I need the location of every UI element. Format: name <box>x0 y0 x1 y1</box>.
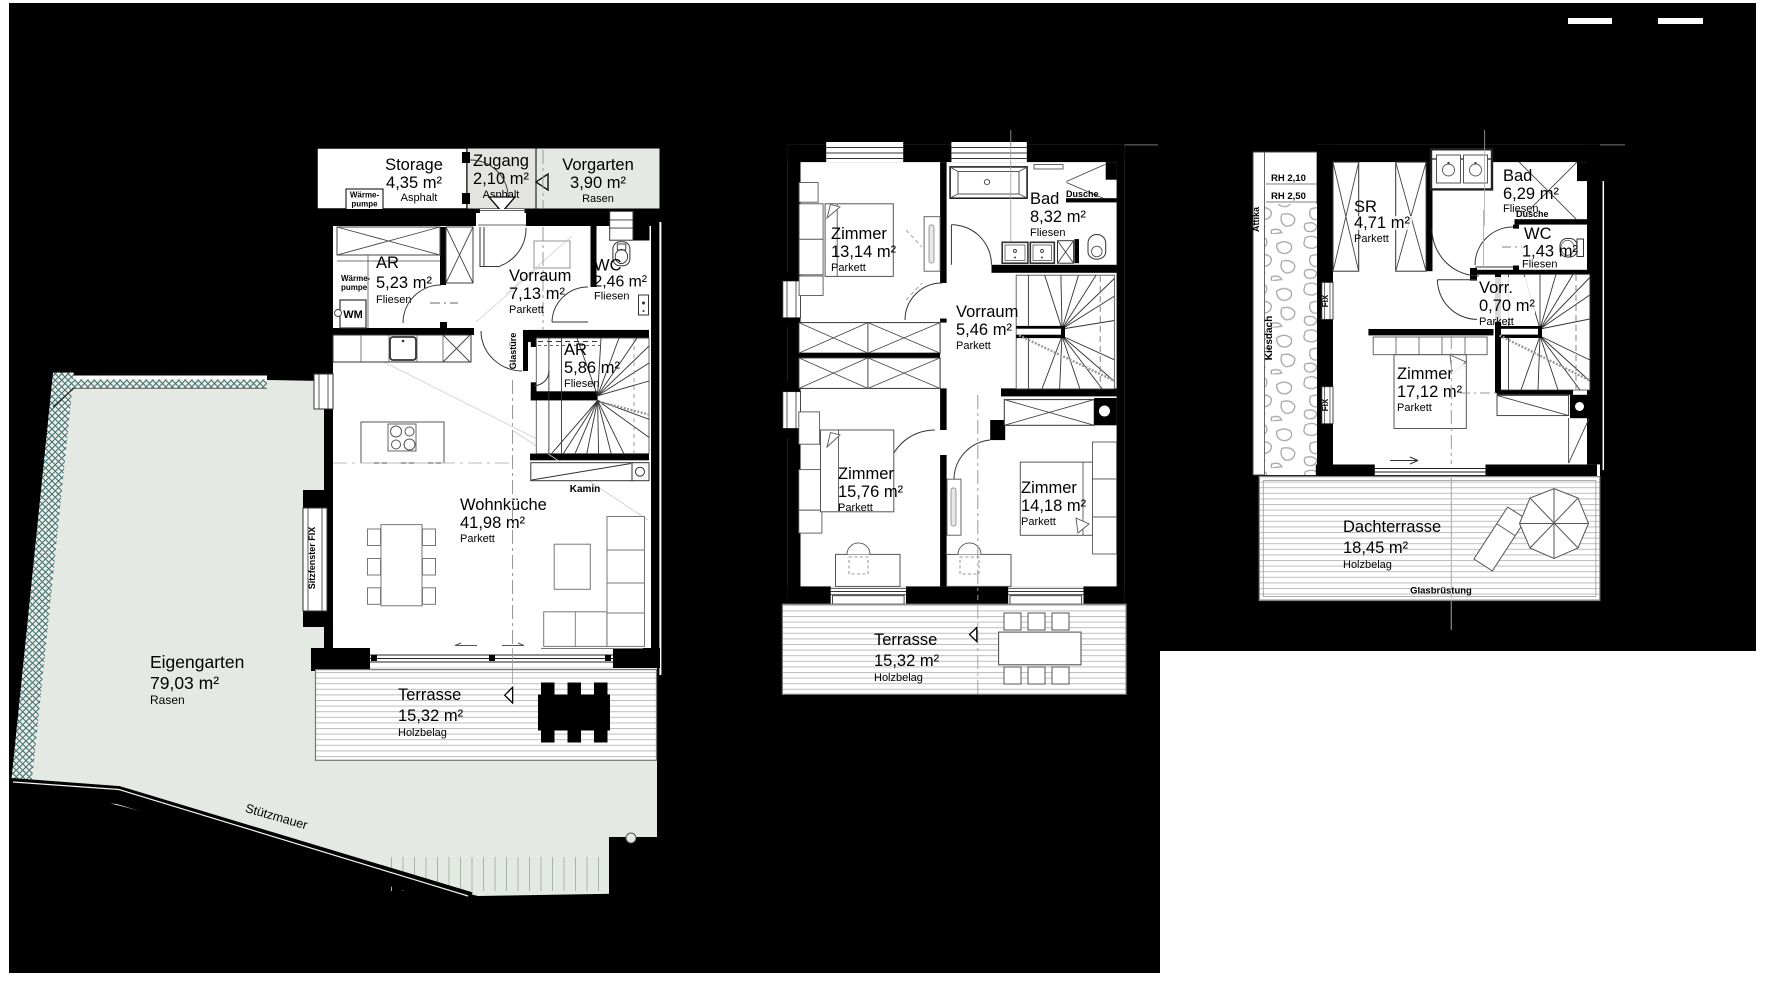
svg-text:Bad: Bad <box>1030 190 1059 208</box>
svg-text:Storage: Storage <box>385 156 443 174</box>
svg-text:Dusche: Dusche <box>1066 189 1099 199</box>
svg-text:Zugang: Zugang <box>473 152 529 170</box>
svg-text:15,76 m²: 15,76 m² <box>838 483 904 501</box>
svg-text:Vorraum: Vorraum <box>509 267 571 285</box>
svg-text:5,86 m²: 5,86 m² <box>564 359 620 377</box>
svg-text:Wärme-: Wärme- <box>341 274 371 283</box>
svg-text:Vorgarten: Vorgarten <box>562 156 634 174</box>
svg-text:4,35 m²: 4,35 m² <box>386 174 442 192</box>
svg-text:Sitzfenster FIX: Sitzfenster FIX <box>307 527 317 590</box>
svg-text:Dachterrasse: Dachterrasse <box>1343 518 1441 536</box>
svg-text:Vorraum: Vorraum <box>956 303 1018 321</box>
svg-text:Wohnküche: Wohnküche <box>460 496 547 514</box>
svg-text:Parkett: Parkett <box>956 340 991 352</box>
svg-text:WC: WC <box>1524 225 1552 243</box>
svg-text:Zimmer: Zimmer <box>1021 479 1077 497</box>
svg-text:Vorr.: Vorr. <box>1479 279 1513 297</box>
svg-text:Zimmer: Zimmer <box>838 465 894 483</box>
svg-text:Zimmer: Zimmer <box>831 225 887 243</box>
svg-text:2,10 m²: 2,10 m² <box>473 170 529 188</box>
svg-text:Parkett: Parkett <box>1479 316 1514 328</box>
svg-text:FIX: FIX <box>1321 294 1330 307</box>
svg-text:RH 2,50: RH 2,50 <box>1271 191 1306 202</box>
svg-text:Glastüre: Glastüre <box>508 333 518 370</box>
svg-text:Holzbelag: Holzbelag <box>1343 559 1392 571</box>
svg-text:Fliesen: Fliesen <box>564 378 599 390</box>
svg-text:Bad: Bad <box>1503 167 1532 185</box>
svg-text:Fliesen: Fliesen <box>594 291 629 303</box>
svg-text:41,98 m²: 41,98 m² <box>460 514 526 532</box>
svg-text:Rasen: Rasen <box>582 193 614 205</box>
svg-text:6,29 m²: 6,29 m² <box>1503 185 1559 203</box>
svg-text:Parkett: Parkett <box>1021 516 1056 528</box>
svg-text:Rasen: Rasen <box>150 693 185 707</box>
svg-text:Parkett: Parkett <box>509 304 544 316</box>
svg-text:Zimmer: Zimmer <box>1397 365 1453 383</box>
svg-text:15,32 m²: 15,32 m² <box>874 652 940 670</box>
svg-text:3,90 m²: 3,90 m² <box>570 174 626 192</box>
svg-text:Parkett: Parkett <box>1397 402 1432 414</box>
svg-text:AR: AR <box>564 341 587 359</box>
svg-text:Parkett: Parkett <box>831 262 866 274</box>
svg-text:13,14 m²: 13,14 m² <box>831 243 897 261</box>
svg-text:Parkett: Parkett <box>460 533 495 545</box>
svg-text:Fliesen: Fliesen <box>1030 227 1065 239</box>
svg-text:Eigengarten: Eigengarten <box>150 652 244 672</box>
svg-text:Attika: Attika <box>1251 206 1261 232</box>
svg-text:18,45 m²: 18,45 m² <box>1343 539 1409 557</box>
svg-text:Parkett: Parkett <box>838 502 873 514</box>
svg-text:Kamin: Kamin <box>570 484 601 495</box>
svg-text:0,70 m²: 0,70 m² <box>1479 297 1535 315</box>
svg-text:FIX: FIX <box>1321 398 1330 411</box>
svg-text:Fliesen: Fliesen <box>1503 203 1538 215</box>
svg-text:Glasbrüstung: Glasbrüstung <box>1410 586 1472 597</box>
svg-text:Terrasse: Terrasse <box>874 631 937 649</box>
svg-text:Fliesen: Fliesen <box>1522 259 1557 271</box>
svg-text:WC: WC <box>594 257 622 275</box>
svg-text:RH 2,10: RH 2,10 <box>1271 173 1306 184</box>
svg-text:pumpe: pumpe <box>351 200 378 209</box>
svg-text:pumpe: pumpe <box>341 283 368 292</box>
svg-text:Terrasse: Terrasse <box>398 686 461 704</box>
svg-text:Holzbelag: Holzbelag <box>874 672 923 684</box>
svg-text:WM: WM <box>343 309 363 321</box>
svg-text:15,32 m²: 15,32 m² <box>398 707 464 725</box>
svg-text:Holzbelag: Holzbelag <box>398 727 447 739</box>
svg-text:17,12 m²: 17,12 m² <box>1397 383 1463 401</box>
svg-text:AR: AR <box>376 254 399 272</box>
svg-text:4,71 m²: 4,71 m² <box>1354 214 1410 232</box>
svg-text:14,18 m²: 14,18 m² <box>1021 497 1087 515</box>
svg-text:2,46 m²: 2,46 m² <box>594 274 648 291</box>
svg-text:Kiesdach: Kiesdach <box>1264 316 1275 360</box>
svg-text:Wärme-: Wärme- <box>350 191 380 200</box>
svg-text:Asphalt: Asphalt <box>401 192 438 204</box>
svg-text:8,32 m²: 8,32 m² <box>1030 208 1086 226</box>
svg-text:79,03 m²: 79,03 m² <box>150 673 219 693</box>
svg-text:Parkett: Parkett <box>1354 233 1389 245</box>
svg-text:5,46 m²: 5,46 m² <box>956 321 1012 339</box>
svg-text:Fliesen: Fliesen <box>376 294 411 306</box>
svg-text:7,13 m²: 7,13 m² <box>509 285 565 303</box>
